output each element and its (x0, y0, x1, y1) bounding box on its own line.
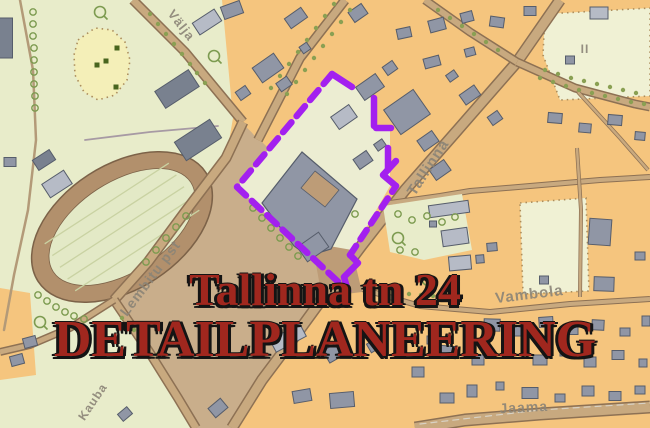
building (412, 367, 424, 377)
tree-dot-icon (543, 68, 547, 72)
tree-dot-icon (156, 352, 160, 356)
tree-dot-icon (132, 328, 136, 332)
tree-dot-icon (616, 97, 620, 101)
detail-plan-map[interactable]: VäljaTallinnaLembitu pstVambolaJaamaKaub… (0, 0, 650, 428)
tree-dot-icon (195, 71, 199, 75)
building (635, 132, 646, 141)
tree-dot-icon (269, 86, 273, 90)
building (503, 346, 513, 354)
tree-dot-icon (305, 38, 309, 42)
building (496, 382, 504, 390)
tree-dot-icon (148, 12, 152, 16)
bush-icon (95, 63, 100, 68)
tree-dot-icon (407, 292, 411, 296)
tree-dot-icon (496, 48, 500, 52)
building (440, 345, 457, 358)
tree-dot-icon (339, 20, 343, 24)
tree-dot-icon (590, 91, 594, 95)
tree-dot-icon (156, 22, 160, 26)
tree-dot-icon (431, 294, 435, 298)
building (533, 355, 547, 365)
tree-dot-icon (484, 40, 488, 44)
tree-dot-icon (144, 340, 148, 344)
tree-dot-icon (538, 76, 542, 80)
building (396, 27, 412, 40)
tree-dot-icon (419, 293, 423, 297)
tree-dot-icon (303, 68, 307, 72)
tree-dot-icon (321, 44, 325, 48)
building (639, 359, 647, 367)
building (594, 277, 614, 292)
tree-dot-icon (323, 14, 327, 18)
bush-icon (104, 59, 109, 64)
building (514, 326, 526, 336)
building (4, 158, 16, 167)
tree-dot-icon (629, 100, 633, 104)
building (566, 56, 575, 64)
tree-dot-icon (608, 85, 612, 89)
building (540, 276, 549, 284)
tree-dot-icon (455, 294, 459, 298)
building (612, 351, 624, 360)
tree-dot-icon (172, 42, 176, 46)
tree-dot-icon (551, 80, 555, 84)
building (430, 221, 437, 227)
tree-dot-icon (285, 92, 289, 96)
tree-dot-icon (443, 294, 447, 298)
building (560, 348, 570, 356)
building (590, 7, 608, 19)
tree-dot-icon (188, 62, 192, 66)
tree-dot-icon (564, 84, 568, 88)
building (584, 357, 596, 367)
tree-dot-icon (603, 94, 607, 98)
street-label-jaama: Jaama (499, 398, 548, 417)
city-basemap[interactable]: VäljaTallinnaLembitu pstVambolaJaamaKaub… (0, 0, 650, 428)
tree-dot-icon (312, 56, 316, 60)
tree-dot-icon (595, 82, 599, 86)
tree-dot-icon (436, 8, 440, 12)
building (448, 255, 471, 271)
land-area (543, 8, 650, 100)
building (484, 319, 500, 332)
building (441, 227, 469, 246)
tree-dot-icon (569, 76, 573, 80)
tree-dot-icon (287, 62, 291, 66)
tree-dot-icon (296, 50, 300, 54)
land-area (0, 288, 36, 380)
tree-dot-icon (332, 2, 336, 6)
building (427, 336, 437, 344)
building (539, 317, 554, 328)
building (489, 16, 504, 28)
tree-dot-icon (621, 88, 625, 92)
building (582, 386, 594, 396)
tree-dot-icon (278, 74, 282, 78)
building (0, 18, 13, 58)
tree-dot-icon (330, 32, 334, 36)
building (467, 385, 477, 397)
tree-dot-icon (294, 80, 298, 84)
tree-dot-icon (448, 16, 452, 20)
building (292, 389, 312, 404)
building (608, 114, 623, 125)
bush-icon (114, 85, 119, 90)
tree-dot-icon (472, 32, 476, 36)
tree-dot-icon (120, 316, 124, 320)
building (566, 326, 578, 335)
building (555, 394, 565, 402)
building (522, 388, 538, 399)
tree-dot-icon (556, 72, 560, 76)
building (620, 328, 630, 336)
building (476, 255, 485, 264)
building (524, 7, 536, 16)
building (588, 218, 612, 245)
tree-dot-icon (180, 52, 184, 56)
tree-dot-icon (577, 88, 581, 92)
tree-dot-icon (460, 24, 464, 28)
tree-dot-icon (383, 289, 387, 293)
tree-dot-icon (582, 79, 586, 83)
tree-dot-icon (164, 32, 168, 36)
building (329, 391, 354, 408)
street-label-storeys-ii: II (581, 42, 590, 56)
building (472, 355, 484, 365)
building (440, 393, 454, 403)
tree-dot-icon (348, 8, 352, 12)
building (548, 112, 563, 123)
building (635, 386, 645, 394)
building (487, 243, 498, 252)
building (609, 392, 621, 401)
tree-dot-icon (314, 26, 318, 30)
building (592, 320, 605, 331)
tree-dot-icon (642, 102, 646, 106)
building (635, 252, 645, 260)
tree-dot-icon (203, 81, 207, 85)
building (642, 316, 650, 326)
tree-dot-icon (634, 91, 638, 95)
building (579, 123, 592, 133)
tree-dot-icon (395, 291, 399, 295)
bush-icon (115, 46, 120, 51)
